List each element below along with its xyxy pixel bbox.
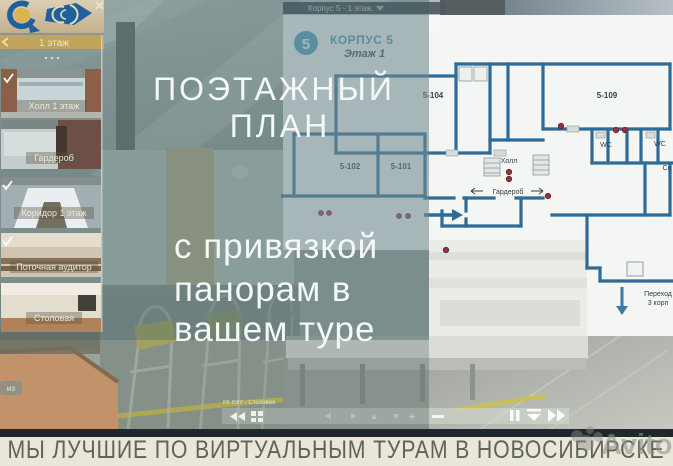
svg-text:Avito: Avito (601, 429, 672, 461)
svg-text:МГУЭУ - Столовая: МГУЭУ - Столовая (223, 400, 275, 406)
svg-text:панорам в: панорам в (174, 270, 352, 309)
svg-text:Столовая: Столовая (34, 313, 74, 323)
svg-text:Коридор 1 этаж: Коридор 1 этаж (22, 208, 87, 218)
svg-text:Поточная аудитор: Поточная аудитор (16, 262, 92, 272)
svg-text:Сн: Сн (663, 165, 672, 172)
svg-text:Переход: Переход (644, 291, 672, 298)
svg-text:Гардероб: Гардероб (34, 153, 74, 163)
svg-text:ПОЭТАЖНЫЙ: ПОЭТАЖНЫЙ (153, 71, 395, 107)
svg-text:МЫ ЛУЧШИЕ ПО ВИРТУАЛЬНЫМ ТУРАМ: МЫ ЛУЧШИЕ ПО ВИРТУАЛЬНЫМ ТУРАМ В НОВОСИБ… (7, 435, 664, 463)
svg-text:вашем туре: вашем туре (174, 310, 375, 349)
svg-text:WC: WC (600, 142, 612, 149)
svg-text:3 корп: 3 корп (648, 300, 669, 307)
svg-text:Холл 1 этаж: Холл 1 этаж (29, 101, 80, 111)
svg-text:Гардероб: Гардероб (493, 188, 524, 196)
svg-text:с привязкой: с привязкой (174, 227, 378, 266)
svg-text:1 этаж: 1 этаж (39, 38, 69, 49)
svg-text:из: из (7, 384, 15, 393)
svg-text:WC: WC (654, 141, 666, 148)
svg-text:ПЛАН: ПЛАН (230, 108, 330, 144)
svg-text:5-109: 5-109 (597, 91, 618, 100)
svg-text:Холл: Холл (501, 158, 518, 165)
